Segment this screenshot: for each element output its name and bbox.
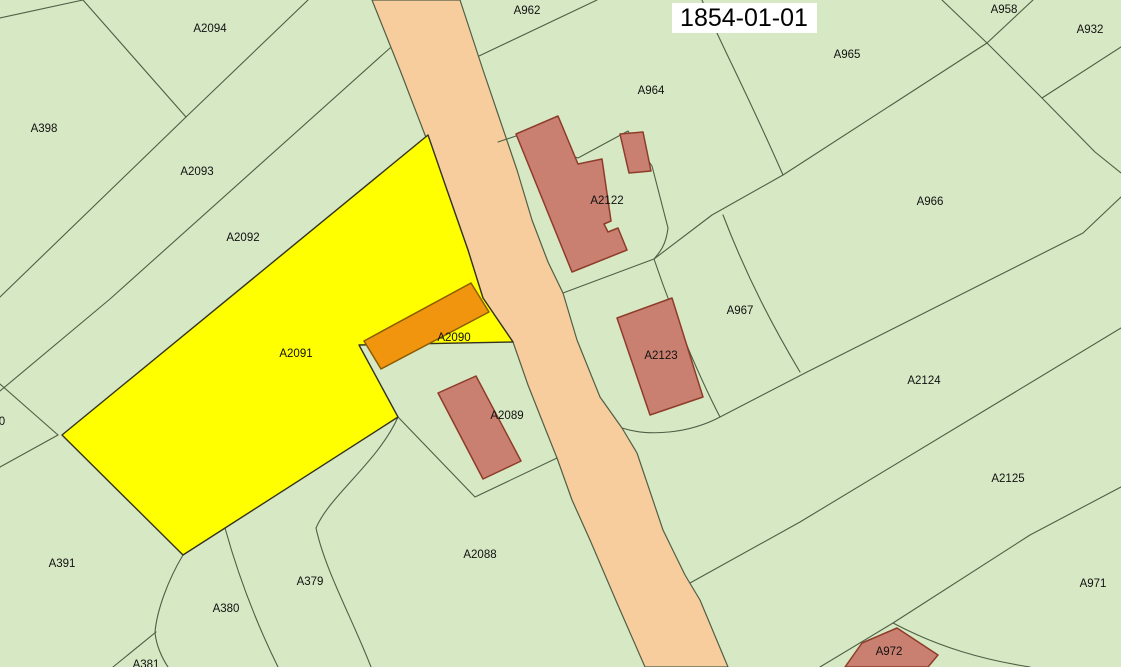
- parcel-label-A2088: A2088: [463, 549, 496, 561]
- parcel-label-A398: A398: [31, 123, 58, 135]
- parcel-label-A2089: A2089: [490, 410, 523, 422]
- parcel-label-A2124: A2124: [907, 375, 941, 387]
- cadastral-map-svg[interactable]: A2094A962A958A932A965A964A398A2093A2122A…: [0, 0, 1121, 667]
- parcel-label-A2094: A2094: [193, 23, 227, 35]
- parcel-label-A2125: A2125: [991, 473, 1024, 485]
- parcel-label-A2091: A2091: [279, 348, 312, 360]
- parcel-label-A972: A972: [876, 646, 903, 658]
- parcel-label-A966: A966: [917, 196, 944, 208]
- date-overlay: 1854-01-01: [672, 3, 817, 33]
- date-overlay-text: 1854-01-01: [680, 4, 808, 32]
- parcel-label-A2090: A2090: [437, 332, 470, 344]
- parcel-label-A2093: A2093: [180, 166, 213, 178]
- map-canvas[interactable]: A2094A962A958A932A965A964A398A2093A2122A…: [0, 0, 1121, 667]
- parcel-label-A965: A965: [834, 49, 861, 61]
- parcel-label-A379: A379: [297, 576, 324, 588]
- parcel-label-A971: A971: [1080, 578, 1107, 590]
- parcel-label-A2123: A2123: [644, 350, 677, 362]
- parcel-label-A958: A958: [991, 4, 1018, 16]
- parcel-label-A932: A932: [1077, 24, 1104, 36]
- parcel-label-A967: A967: [727, 305, 754, 317]
- parcel-label-A380: A380: [213, 603, 240, 615]
- parcel-label-A391: A391: [49, 558, 76, 570]
- parcel-label-A964: A964: [638, 85, 665, 97]
- parcel-label-A962: A962: [514, 5, 541, 17]
- parcel-label-A2122: A2122: [590, 195, 623, 207]
- parcel-label-A381: A381: [133, 659, 160, 667]
- parcel-label-A2092: A2092: [226, 232, 259, 244]
- parcel-label-0: 0: [0, 416, 5, 428]
